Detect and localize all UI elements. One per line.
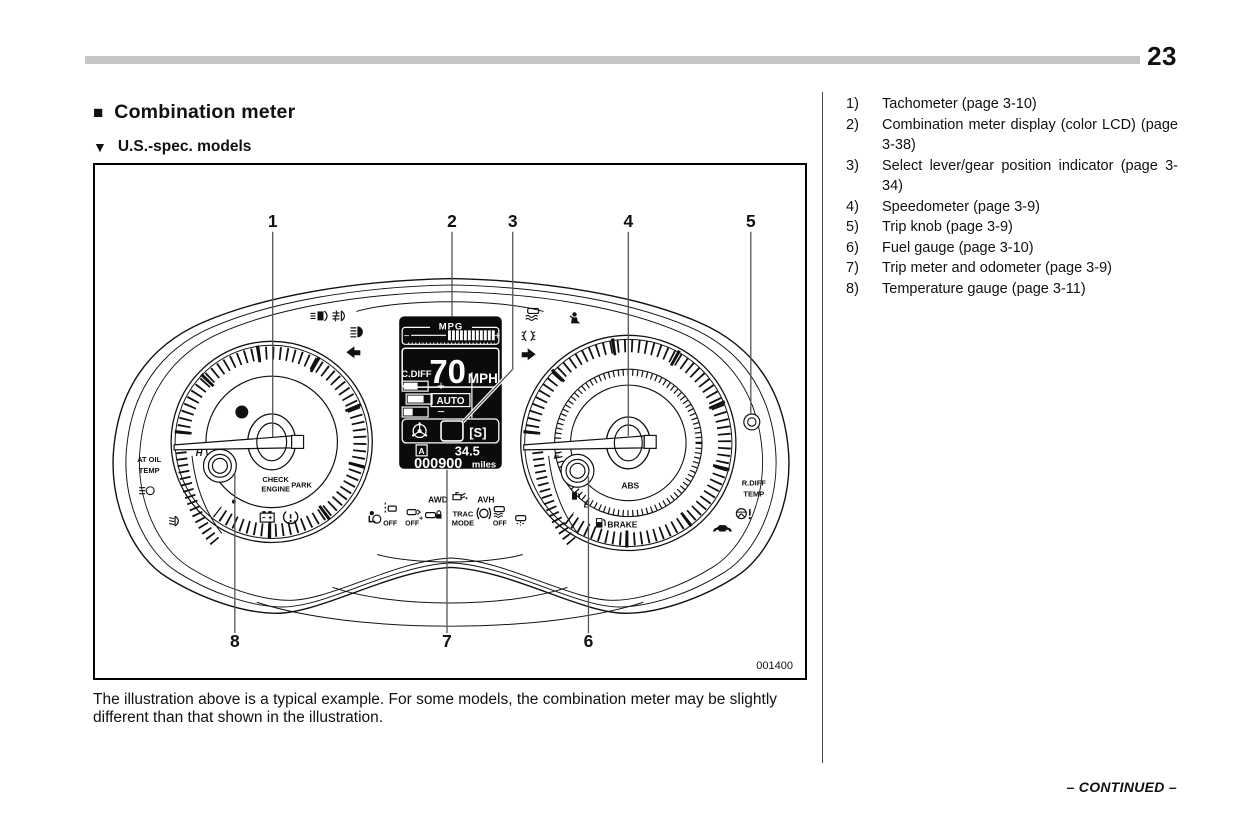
brake-hold-icon	[477, 508, 490, 519]
speedometer-needle-tail	[644, 435, 656, 448]
right-turn-signal-icon	[522, 348, 536, 360]
seatbelt-warning-icon	[570, 312, 579, 323]
callout-8: 8	[230, 473, 240, 651]
at-oil-temp-label-1: AT OIL	[137, 455, 161, 464]
tpms-warning-icon	[284, 512, 298, 524]
subsection-heading: ▼ U.S.-spec. models	[93, 138, 251, 156]
figure-caption: The illustration above is a typical exam…	[93, 691, 809, 727]
traction-off-label: OFF	[493, 521, 507, 528]
callout-5: 5	[746, 211, 756, 415]
manual-page: { "page": { "number": "23", "continued":…	[0, 0, 1241, 827]
park-label: PARK	[291, 481, 312, 490]
callout-2-number: 2	[447, 211, 457, 231]
exterior-lamp-icon	[311, 311, 327, 321]
high-beam-icon	[350, 326, 362, 337]
continued-note: – CONTINUED –	[1067, 779, 1177, 795]
callout-4-number: 4	[623, 211, 633, 231]
legend-item-5: 5) Trip knob (page 3-9)	[846, 217, 1178, 238]
awd-label: AWD	[428, 495, 448, 505]
legend-label: Temperature gauge (page 3-11)	[882, 279, 1178, 300]
callout-2: 2	[447, 211, 457, 317]
legend-label: Trip knob (page 3-9)	[882, 217, 1178, 238]
check-engine-label-2: ENGINE	[261, 485, 290, 494]
vehicle-warning-icon	[713, 525, 732, 533]
legend-item-7: 7) Trip meter and odometer (page 3-9)	[846, 258, 1178, 279]
column-divider	[822, 92, 823, 763]
legend-number: 5)	[846, 217, 882, 238]
odometer-value: 000900	[414, 456, 462, 472]
power-steering-warning-icon	[736, 509, 751, 520]
parking-light-icon	[522, 331, 535, 341]
cluster-illustration: H CHECK ENGINE PARK	[95, 165, 805, 674]
legend-label: Select lever/gear position indicator (pa…	[882, 156, 1178, 197]
left-warning-cluster: AT OIL TEMP	[137, 455, 178, 526]
low-beam-icon	[169, 516, 178, 526]
sway-warning-off-icon	[407, 510, 420, 515]
legend-item-3: 3) Select lever/gear position indicator …	[846, 156, 1178, 197]
traction-off-icon	[494, 507, 504, 518]
trip-knob[interactable]	[744, 414, 760, 430]
legend-label: Trip meter and odometer (page 3-9)	[882, 258, 1178, 279]
mpg-label: MPG	[439, 321, 464, 332]
top-left-telltales	[311, 310, 363, 358]
callout-7-number: 7	[442, 631, 452, 651]
mpg-minus: −	[404, 331, 410, 342]
legend-number: 2)	[846, 115, 882, 156]
square-bullet-icon: ■	[93, 104, 103, 121]
rdiff-temp-label-1: R.DIFF	[742, 479, 766, 488]
abs-label: ABS	[621, 481, 639, 491]
page-number: 23	[1147, 41, 1177, 72]
check-engine-label-1: CHECK	[262, 475, 289, 484]
fuel-pump-icon	[596, 518, 605, 527]
airbag-warning-icon	[369, 511, 380, 523]
tachometer: H CHECK ENGINE PARK	[171, 341, 372, 542]
legend-number: 6)	[846, 238, 882, 259]
callout-3-number: 3	[508, 211, 518, 231]
callout-1-number: 1	[268, 211, 278, 231]
subsection-title: U.S.-spec. models	[118, 138, 252, 156]
legend-item-6: 6) Fuel gauge (page 3-10)	[846, 238, 1178, 259]
cdiff-minus: −	[437, 404, 445, 419]
eyesight-warning-icon	[516, 516, 526, 526]
tachometer-indicator-dot	[235, 406, 248, 419]
legend-label: Speedometer (page 3-9)	[882, 197, 1178, 218]
at-oil-temp-icon	[139, 487, 154, 495]
lane-departure-off-icon	[385, 503, 396, 515]
avh-label: AVH	[477, 495, 494, 505]
legend-number: 7)	[846, 258, 882, 279]
battery-warning-icon	[260, 511, 274, 522]
legend-label: Tachometer (page 3-10)	[882, 94, 1178, 115]
tachometer-needle-tail	[292, 435, 304, 448]
sway-off-label: OFF	[405, 521, 419, 528]
figure-code: 001400	[756, 660, 793, 672]
legend-number: 8)	[846, 279, 882, 300]
cdiff-plus: +	[437, 378, 445, 393]
legend-number: 4)	[846, 197, 882, 218]
left-turn-signal-icon	[346, 346, 360, 358]
combination-meter-figure: H CHECK ENGINE PARK	[93, 163, 807, 680]
legend-item-2: 2) Combination meter display (color LCD)…	[846, 115, 1178, 156]
lcd-display: MPG − + 70 MPH C.DIFF +	[399, 316, 502, 471]
mpg-plus: +	[494, 331, 500, 342]
sport-mode-label: [S]	[469, 425, 486, 440]
legend-number: 3)	[846, 156, 882, 197]
fuel-f-label: F	[554, 451, 560, 462]
sway-plus-label: +	[419, 516, 423, 523]
oil-pressure-icon	[453, 493, 467, 500]
trac-mode-label-1: TRAC	[453, 510, 474, 519]
security-lock-icon	[426, 511, 442, 519]
vdc-warning-icon	[526, 308, 539, 320]
triangle-bullet-icon: ▼	[93, 140, 107, 154]
callout-5-number: 5	[746, 211, 756, 231]
cdiff-label: C.DIFF	[401, 369, 432, 380]
section-title: Combination meter	[114, 101, 295, 124]
brake-label: BRAKE	[607, 520, 637, 530]
fog-light-icon	[332, 310, 344, 321]
odometer-unit: miles	[472, 459, 496, 470]
legend-item-1: 1) Tachometer (page 3-10)	[846, 94, 1178, 115]
at-oil-temp-label-2: TEMP	[139, 466, 160, 475]
lane-off-label: OFF	[383, 521, 397, 528]
legend-number: 1)	[846, 94, 882, 115]
rdiff-temp-label-2: TEMP	[743, 490, 764, 499]
section-heading: ■ Combination meter	[93, 101, 295, 124]
callout-legend: 1) Tachometer (page 3-10) 2) Combination…	[846, 94, 1178, 299]
legend-item-4: 4) Speedometer (page 3-9)	[846, 197, 1178, 218]
temperature-gauge-knob[interactable]	[203, 449, 236, 482]
legend-label: Fuel gauge (page 3-10)	[882, 238, 1178, 259]
trac-mode-label-2: MODE	[452, 519, 474, 528]
callout-8-number: 8	[230, 631, 240, 651]
header-rule	[85, 56, 1140, 64]
speed-value: 70	[429, 353, 466, 390]
callout-6-number: 6	[584, 631, 594, 651]
right-warning-cluster: R.DIFF TEMP	[713, 479, 766, 534]
legend-item-8: 8) Temperature gauge (page 3-11)	[846, 279, 1178, 300]
legend-label: Combination meter display (color LCD) (p…	[882, 115, 1178, 156]
trip-a-label: A	[419, 446, 425, 456]
